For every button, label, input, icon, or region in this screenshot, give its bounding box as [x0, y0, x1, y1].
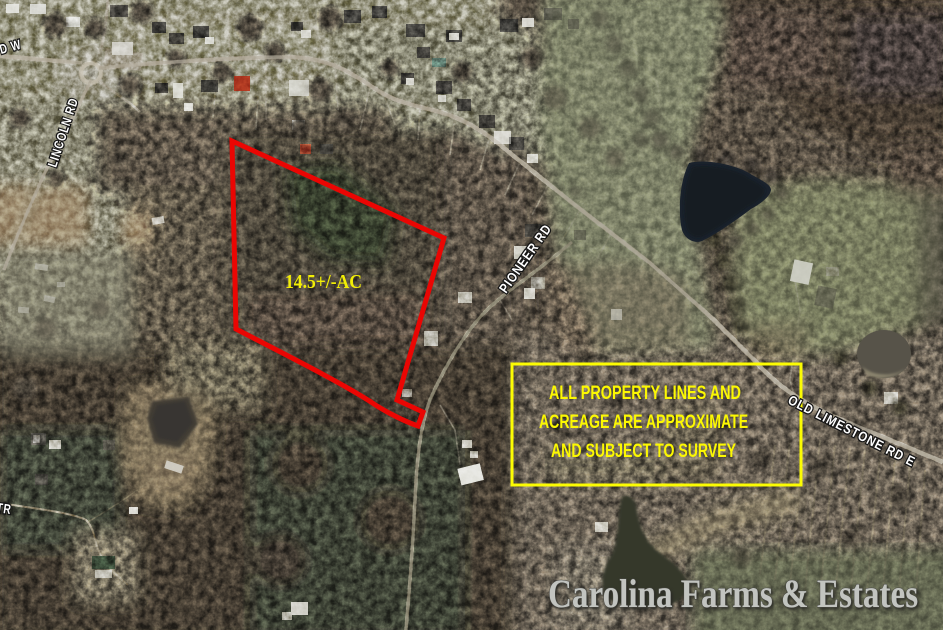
- svg-text:ACREAGE ARE APPROXIMATE: ACREAGE ARE APPROXIMATE: [539, 411, 748, 433]
- svg-text:14.5+/-AC: 14.5+/-AC: [285, 271, 362, 293]
- svg-text:AND SUBJECT TO SURVEY: AND SUBJECT TO SURVEY: [551, 440, 736, 462]
- svg-text:Carolina Farms & Estates: Carolina Farms & Estates: [548, 571, 918, 616]
- svg-text:TR: TR: [0, 500, 13, 518]
- svg-text:ALL PROPERTY LINES AND: ALL PROPERTY LINES AND: [549, 382, 741, 403]
